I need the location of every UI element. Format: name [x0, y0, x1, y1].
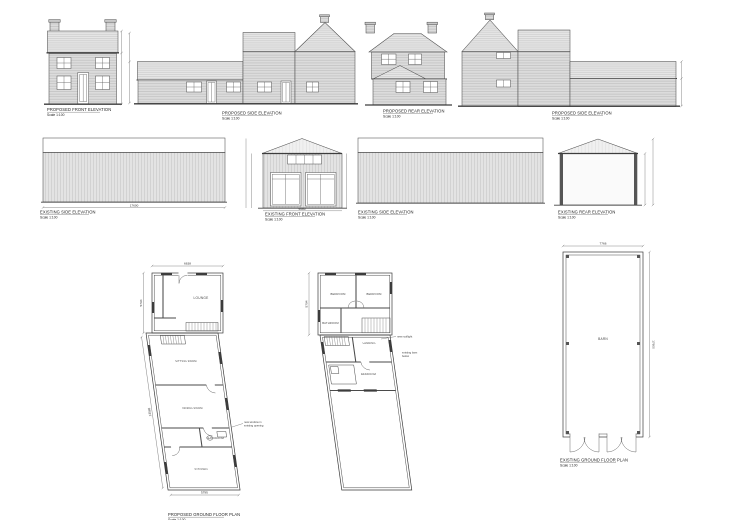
skewed-wing: SITTING ROOM DINING ROOM BATHROOM KITCHE… [137, 333, 241, 496]
drawing-scale: Scale 1:100 [40, 216, 58, 220]
drawing-scale: Scale 1:100 [358, 216, 376, 220]
proposed-rear-elevation: PROPOSED REAR ELEVATION Scale 1:100 [365, 22, 452, 119]
window [396, 82, 410, 93]
roof [48, 31, 119, 53]
drawing-scale: Scale 1:100 [552, 117, 570, 121]
annotation-text: existing opening [244, 424, 264, 428]
skewed-wing: LANDING BEDROOM [320, 335, 412, 490]
room-label: BATHROOM [322, 321, 339, 325]
drawing-title: EXISTING FRONT ELEVATION [265, 212, 325, 217]
drawing-scale: Scale 1:100 [47, 113, 65, 117]
existing-side-elevation-1: 17600 EXISTING SIDE ELEVATION Scale 1:10… [40, 138, 227, 220]
door-swing-arc [607, 437, 622, 452]
drawing-title: EXISTING SIDE ELEVATION [40, 210, 96, 215]
window [424, 82, 438, 93]
drawing-title: EXISTING REAR ELEVATION [558, 210, 615, 215]
window [258, 82, 272, 92]
annotation-text: existing barn [402, 351, 418, 355]
door-opening [179, 272, 188, 275]
proposed-side-elevation-1: PROPOSED SIDE ELEVATION Scale 1:100 [128, 15, 358, 121]
roof-mid [518, 30, 570, 52]
window [187, 82, 202, 92]
wall-mid [518, 52, 570, 107]
dimension-label: 17600 [130, 203, 139, 207]
barn-door [306, 173, 337, 207]
corner-post [566, 431, 569, 434]
room-label: BEDROOM [331, 292, 347, 296]
gable-roof [262, 139, 342, 154]
room-label: BATHROOM [207, 436, 225, 440]
annotation: new window in existing opening [232, 420, 264, 428]
drawing-scale: Scale 1:100 [383, 115, 401, 119]
gable-roof [558, 139, 638, 154]
chimney [49, 20, 60, 32]
barn-plan: 7766 17600 BARN [560, 242, 656, 468]
door-swing-arc [570, 437, 585, 452]
door-swing-arc [357, 301, 364, 308]
partition-wall [352, 337, 355, 362]
clad-wall [43, 153, 225, 203]
room-label: BEDROOM [361, 372, 377, 376]
door-swing-arc [179, 275, 187, 283]
dimension-line [128, 32, 131, 104]
barn-inner-wall [566, 255, 640, 434]
dimension-line: 7766 [562, 242, 644, 248]
existing-side-elevation-2: EXISTING SIDE ELEVATION Scale 1:100 [356, 138, 545, 220]
wall-post [566, 342, 569, 345]
window-bar [149, 345, 151, 356]
room-label: KITCHEN [194, 467, 207, 471]
rear-wall [560, 154, 637, 206]
drawing-scale: Scale 1:100 [265, 217, 283, 221]
roof-low [138, 62, 244, 81]
proposed-front-elevation: PROPOSED FRONT ELEVATION Scale 1:100 [44, 20, 123, 118]
corner-post [637, 431, 640, 434]
dimension-line: 5794 [305, 272, 311, 336]
drawing-title: EXISTING SIDE ELEVATION [358, 210, 414, 215]
window [227, 82, 241, 92]
drawing-title: EXISTING GROUND FLOOR PLAN [560, 458, 628, 463]
room-label: DINING ROOM [182, 406, 203, 410]
window [96, 58, 110, 69]
dimension-line: 17600 [42, 203, 226, 208]
window [307, 82, 319, 92]
dimension-label: 5680 [299, 207, 306, 211]
stairs [362, 318, 390, 333]
corner-post [634, 154, 637, 206]
door-opening [171, 446, 180, 449]
corner-post [637, 255, 640, 258]
annotation-text: new rooflight [397, 335, 412, 339]
drawing-title: PROPOSED SIDE ELEVATION [222, 111, 282, 116]
dimension-label: 6638 [184, 262, 191, 266]
window [497, 53, 511, 59]
chimney [365, 22, 376, 33]
drawing-scale: Scale 1:100 [558, 216, 576, 220]
dimension-line: 6638 [151, 262, 224, 268]
corner-post [566, 255, 569, 258]
door-opening [206, 384, 215, 387]
gable-window [288, 155, 322, 164]
door-swing-arc [348, 301, 355, 308]
window [382, 54, 397, 65]
annotation-text: new window in [244, 420, 262, 424]
room-label: SITTING ROOM [175, 359, 198, 363]
dimension-label: 13565 [147, 407, 152, 416]
dimension-label: 5794 [139, 299, 143, 306]
main-roof [369, 34, 447, 53]
window [57, 76, 71, 90]
roof-band [358, 138, 543, 153]
proposed-side-elevation-2: PROPOSED SIDE ELEVATION Scale 1:100 [458, 13, 683, 121]
gable-house [462, 13, 518, 106]
drawing-title: PROPOSED REAR ELEVATION [383, 109, 445, 114]
gable-house [295, 15, 355, 104]
first-floor-plan: 5794 BEDROOM BEDROOM BATHROOM [305, 272, 418, 490]
barn-doors [570, 433, 636, 452]
door-opening [203, 427, 212, 430]
room-label: BARN [598, 337, 608, 341]
bed-symbol [329, 365, 357, 384]
front-door [78, 73, 89, 104]
window [96, 76, 110, 90]
drawing-scale: Scale 1:100 [560, 464, 578, 468]
wall-low [570, 79, 676, 107]
existing-rear-elevation: EXISTING REAR ELEVATION Scale 1:100 [554, 138, 654, 220]
door [281, 81, 291, 104]
plan-sheet-svg: PROPOSED FRONT ELEVATION Scale 1:100 [0, 0, 730, 520]
door-swing-arc [584, 437, 599, 452]
wall-post [637, 342, 640, 345]
drawing-sheet: PROPOSED FRONT ELEVATION Scale 1:100 [0, 0, 730, 520]
corner-post [560, 154, 563, 206]
door-swing-arc [621, 437, 636, 452]
roof-band [43, 138, 225, 153]
stairs [186, 323, 218, 332]
drawing-scale: Scale 1:100 [222, 117, 240, 121]
door-opening [361, 361, 370, 364]
dimension-line: 5794 [139, 272, 145, 334]
drawing-title: PROPOSED FRONT ELEVATION [47, 107, 111, 112]
room-block: LOUNGE [152, 272, 223, 333]
door [207, 81, 217, 104]
barn-door [271, 173, 302, 207]
stairs [160, 336, 185, 345]
roof-mid [243, 33, 295, 52]
room-block: BEDROOM BEDROOM BATHROOM [318, 273, 392, 335]
room-label: LANDING [362, 341, 376, 345]
dimension-line: 13565 [137, 336, 164, 489]
dimension-label: 5790 [201, 491, 209, 495]
room-label: LOUNGE [194, 296, 209, 300]
dimension-line [644, 138, 654, 206]
window [57, 58, 71, 69]
dimension-line [680, 60, 683, 107]
ground-floor-plan: 6638 5794 [137, 262, 264, 520]
dimension-label: 17600 [652, 340, 656, 349]
drawing-title: PROPOSED SIDE ELEVATION [552, 111, 612, 116]
dimension-label: 7766 [600, 242, 607, 246]
room-label: BEDROOM [367, 292, 383, 296]
stairs [324, 337, 349, 346]
dimension-label: 5794 [305, 300, 309, 307]
annotation: existing barn below [402, 351, 418, 359]
drawing-title: PROPOSED GROUND FLOOR PLAN [168, 512, 240, 517]
chimney [427, 22, 438, 33]
clad-wall [358, 153, 543, 204]
existing-front-elevation: 5680 EXISTING FRONT ELEVATION Scale 1:10… [246, 139, 347, 222]
partition-wall [199, 428, 202, 447]
roof-low [570, 62, 676, 79]
barn-outer-wall [563, 252, 643, 437]
annotation-text: below [402, 354, 409, 358]
window [409, 54, 422, 65]
dimension-line: 17600 [648, 251, 655, 438]
chimney [105, 20, 116, 32]
window [497, 80, 511, 87]
dimension-line [120, 30, 123, 105]
dimension-line: 5790 [169, 491, 240, 497]
